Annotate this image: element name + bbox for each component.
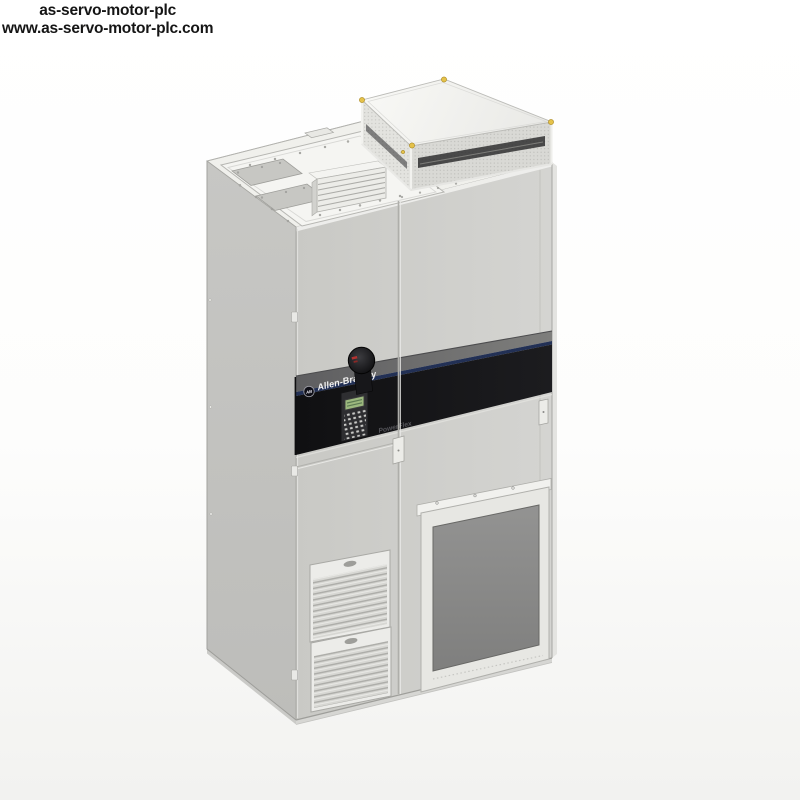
ab-logo-medallion: AB — [304, 386, 314, 396]
keypad-module — [341, 387, 368, 442]
watermark: as-servo-motor-plc www.as-servo-motor-pl… — [2, 2, 213, 37]
louver-grille-upper — [310, 550, 390, 642]
seam-latch — [393, 436, 404, 464]
watermark-url: www.as-servo-motor-plc.com — [2, 20, 213, 38]
right-edge-latch — [539, 399, 548, 425]
cabinet-side-panel — [207, 161, 296, 720]
filter-media — [433, 505, 539, 671]
knob-face — [348, 347, 374, 373]
louver-end-cap — [312, 179, 317, 216]
page: AB Allen-Bradley PowerFlex — [0, 0, 800, 800]
keypad-buttons — [344, 409, 366, 440]
product-image: AB Allen-Bradley PowerFlex — [0, 0, 800, 800]
filter-panel — [417, 479, 551, 693]
ventilation-grilles — [310, 550, 391, 712]
watermark-brand: as-servo-motor-plc — [2, 2, 213, 20]
right-return-sliver — [552, 162, 557, 658]
